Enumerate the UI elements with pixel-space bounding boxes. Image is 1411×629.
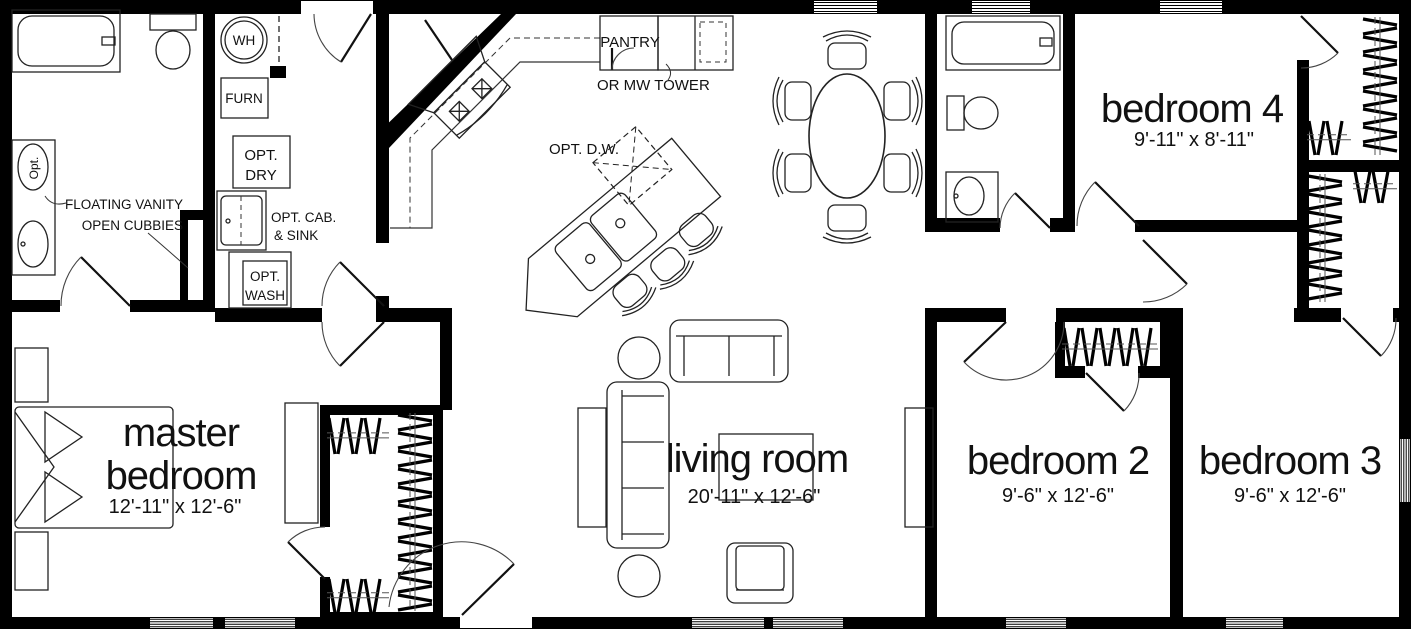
master-bath bbox=[12, 10, 196, 275]
wall-mcloset-right bbox=[433, 405, 443, 622]
bedroom4-door-leaf bbox=[1095, 182, 1139, 226]
bathtub-basin bbox=[18, 16, 114, 66]
hatch-bed3-closet-left bbox=[1308, 174, 1342, 302]
wall-bath2-south-right bbox=[1050, 218, 1063, 232]
nightstand-1 bbox=[15, 348, 48, 402]
faucet-dot bbox=[21, 242, 25, 246]
hatch-mcloset-right bbox=[398, 413, 432, 611]
hall-door-leaf bbox=[1143, 240, 1187, 284]
wall-bath2-left bbox=[925, 0, 937, 230]
burner-1-x bbox=[449, 101, 469, 121]
master-bedroom-label-1: master bbox=[123, 411, 240, 455]
bathtub-drain bbox=[102, 37, 115, 45]
bath2-door-swing bbox=[1000, 193, 1015, 228]
opt-dry-label-2: DRY bbox=[245, 167, 276, 184]
wall-b2closet-bottom-r bbox=[1138, 366, 1170, 378]
hatch-mcloset-bottom bbox=[327, 579, 389, 613]
bedroom3-label: bedroom 3 bbox=[1199, 439, 1381, 483]
window-bedroom3 bbox=[1226, 618, 1283, 628]
bedroom3-closet-door-leaf bbox=[1343, 318, 1381, 356]
window-bedroom4 bbox=[1160, 1, 1222, 13]
window-bath2 bbox=[972, 1, 1030, 13]
bar-stool-2 bbox=[643, 240, 698, 294]
entry-bottom-door-leaf bbox=[462, 564, 514, 615]
wall-bath-south-left bbox=[12, 300, 60, 312]
bedroom2-closet-door-swing bbox=[1124, 373, 1139, 411]
dining-table bbox=[809, 74, 885, 198]
utility-faucet-dot bbox=[226, 219, 230, 223]
bedroom2-dims: 9'-6" x 12'-6" bbox=[1002, 485, 1114, 507]
hatch-bed2-closet bbox=[1062, 328, 1158, 366]
window-master-1 bbox=[150, 618, 213, 628]
toilet-tank bbox=[150, 14, 196, 30]
hatch-mcloset-top bbox=[327, 418, 389, 454]
pantry-label: PANTRY bbox=[600, 34, 659, 51]
wall-bath2-bed4 bbox=[1063, 0, 1075, 232]
kitchen-upper-cabinets bbox=[410, 38, 600, 228]
master-bedroom-label-2: bedroom bbox=[106, 454, 257, 498]
living-room-label: living room bbox=[666, 437, 848, 481]
pantry-door-swing bbox=[612, 48, 634, 70]
armchair bbox=[727, 543, 793, 603]
master-bedroom-door-swing bbox=[322, 322, 340, 366]
bath2 bbox=[946, 16, 1060, 222]
window-bedroom3-side bbox=[1400, 439, 1410, 502]
wall-closet-divider bbox=[1297, 160, 1411, 172]
master-bedroom-door-leaf bbox=[340, 322, 384, 366]
utility-door-swing bbox=[322, 262, 340, 306]
wall-wh-stub bbox=[270, 66, 286, 78]
window-living-2 bbox=[773, 618, 843, 628]
kitchen-diagonal-door-leaf bbox=[425, 20, 452, 60]
wall-bath-utility bbox=[203, 0, 215, 312]
bedroom2-door-leaf bbox=[964, 322, 1006, 362]
sofa bbox=[607, 382, 669, 548]
dining-chair-left-2 bbox=[773, 149, 811, 197]
entry-opening-bottom bbox=[460, 617, 532, 628]
wall-outer-left bbox=[0, 0, 12, 629]
island-body bbox=[502, 138, 721, 339]
opt-cab-label-1: OPT. CAB. bbox=[271, 210, 336, 225]
bath2-toilet-bowl bbox=[964, 97, 998, 129]
bedroom4-label: bedroom 4 bbox=[1101, 87, 1284, 131]
bedroom4-dims: 9'-11" x 8'-11" bbox=[1134, 129, 1254, 151]
wall-bath2-south-left bbox=[925, 218, 1000, 232]
hatch-bed4-closet-right bbox=[1363, 17, 1397, 155]
pillow-1 bbox=[45, 412, 82, 462]
master-bedroom-dims: 12'-11" x 12'-6" bbox=[109, 496, 242, 518]
wall-b2closet-right bbox=[1160, 322, 1170, 372]
dining-chair-left-1 bbox=[773, 77, 811, 125]
master-closet-door-leaf bbox=[288, 542, 325, 579]
hall-door-swing bbox=[1143, 284, 1187, 302]
vanity-sink bbox=[18, 221, 48, 267]
island-sink-1 bbox=[553, 220, 624, 293]
dining-chair-right-2 bbox=[884, 149, 922, 197]
bedroom2-closet-door-leaf bbox=[1086, 373, 1124, 411]
dresser bbox=[285, 403, 318, 523]
wall-bed4-closet bbox=[1297, 60, 1309, 322]
wall-mcloset-top bbox=[320, 405, 443, 415]
master-closet-door-swing bbox=[288, 527, 325, 542]
sofa-cushions bbox=[622, 390, 664, 540]
utility-sink-basin bbox=[221, 196, 262, 245]
floating-vanity-label: FLOATING VANITY bbox=[65, 197, 183, 212]
bath2-faucet-dot bbox=[954, 194, 958, 198]
wall-hall-south-left bbox=[215, 308, 322, 322]
master-bath-door-swing bbox=[61, 257, 81, 306]
bar-stool-3 bbox=[671, 206, 726, 260]
island-sink-drain-1 bbox=[584, 253, 597, 266]
window-dining bbox=[814, 1, 877, 13]
wall-hall-south-right bbox=[389, 308, 452, 322]
hatch-bed4-closet-left bbox=[1307, 121, 1351, 155]
sofa-table bbox=[578, 408, 606, 527]
bedroom2-door-swing bbox=[964, 322, 1064, 380]
wall-hall2-south-2 bbox=[1056, 308, 1183, 322]
armchair-seat bbox=[736, 546, 784, 590]
opt-cab-label-2: & SINK bbox=[274, 228, 318, 243]
refrigerator-icebox bbox=[700, 22, 726, 62]
wall-mcloset-bottom bbox=[320, 612, 443, 620]
entry-top-door-leaf bbox=[341, 14, 371, 62]
wall-bed4-south bbox=[1135, 220, 1297, 232]
furn-label: FURN bbox=[225, 91, 263, 106]
dining-chair-right-1 bbox=[884, 77, 922, 125]
bedroom4-door-swing bbox=[1077, 182, 1095, 226]
end-table-2 bbox=[618, 555, 660, 597]
floor-plan: master bedroom 12'-11" x 12'-6" living r… bbox=[0, 0, 1411, 629]
opt-wash-label-2: WASH bbox=[245, 288, 285, 303]
dining-chair-top bbox=[823, 31, 871, 69]
window-master-2 bbox=[225, 618, 295, 628]
entry-top-door-swing bbox=[314, 14, 341, 62]
opt-wash-label-1: OPT. bbox=[250, 269, 280, 284]
opt-dw-label: OPT. D.W. bbox=[549, 141, 619, 158]
wall-kitchen-diagonal bbox=[376, 14, 516, 148]
bedroom2-label: bedroom 2 bbox=[967, 439, 1149, 483]
window-bedroom2 bbox=[1006, 618, 1066, 628]
utility-door-leaf bbox=[340, 262, 384, 306]
opt-dry-label-1: OPT. bbox=[244, 147, 277, 164]
bedroom4-closet-door-leaf bbox=[1301, 16, 1338, 53]
bar-stool-1 bbox=[605, 267, 660, 321]
nightstand-2 bbox=[15, 532, 48, 590]
dining-area bbox=[773, 31, 922, 243]
wh-label: WH bbox=[233, 33, 256, 48]
bed-fold bbox=[15, 412, 54, 522]
wall-bath-south-right bbox=[130, 300, 203, 312]
bath2-tub-basin bbox=[952, 22, 1054, 64]
burner-2-x bbox=[472, 79, 492, 99]
wall-bed2-bed3 bbox=[1170, 310, 1183, 617]
bath2-door-leaf bbox=[1015, 193, 1050, 228]
living-room-dims: 20'-11" x 12'-6" bbox=[688, 486, 821, 508]
bath2-tub-drain bbox=[1040, 38, 1052, 46]
open-cubbies-label: OPEN CUBBIES bbox=[82, 218, 183, 233]
bath2-toilet-tank bbox=[947, 96, 964, 130]
wall-living-bed2 bbox=[925, 310, 937, 617]
toilet-bowl bbox=[156, 31, 190, 69]
hatch-bed3-closet-top bbox=[1353, 171, 1397, 203]
end-table-1 bbox=[618, 337, 660, 379]
wall-hub-east bbox=[440, 322, 452, 410]
floor-plan-svg: master bedroom 12'-11" x 12'-6" living r… bbox=[0, 0, 1411, 629]
bathtub bbox=[12, 10, 120, 72]
wall-hall2-south-1 bbox=[925, 308, 1006, 322]
dining-chair-bottom bbox=[823, 205, 871, 243]
bedroom3-dims: 9'-6" x 12'-6" bbox=[1234, 485, 1346, 507]
window-living-1 bbox=[692, 618, 764, 628]
vanity-opt-label: Opt. bbox=[27, 157, 41, 180]
bath2-tub bbox=[946, 16, 1060, 70]
pillow-2 bbox=[45, 472, 82, 522]
bedroom3-closet-door-swing bbox=[1381, 318, 1396, 356]
wall-b2closet-bottom-l bbox=[1055, 366, 1085, 378]
entry-opening-top bbox=[301, 1, 373, 14]
master-bath-door-leaf bbox=[81, 257, 130, 306]
wall-hall2-south-3 bbox=[1294, 308, 1341, 322]
loveseat-cushions bbox=[676, 336, 782, 376]
mw-tower-label: OR MW TOWER bbox=[597, 77, 710, 94]
island-sink-drain-2 bbox=[614, 217, 627, 230]
